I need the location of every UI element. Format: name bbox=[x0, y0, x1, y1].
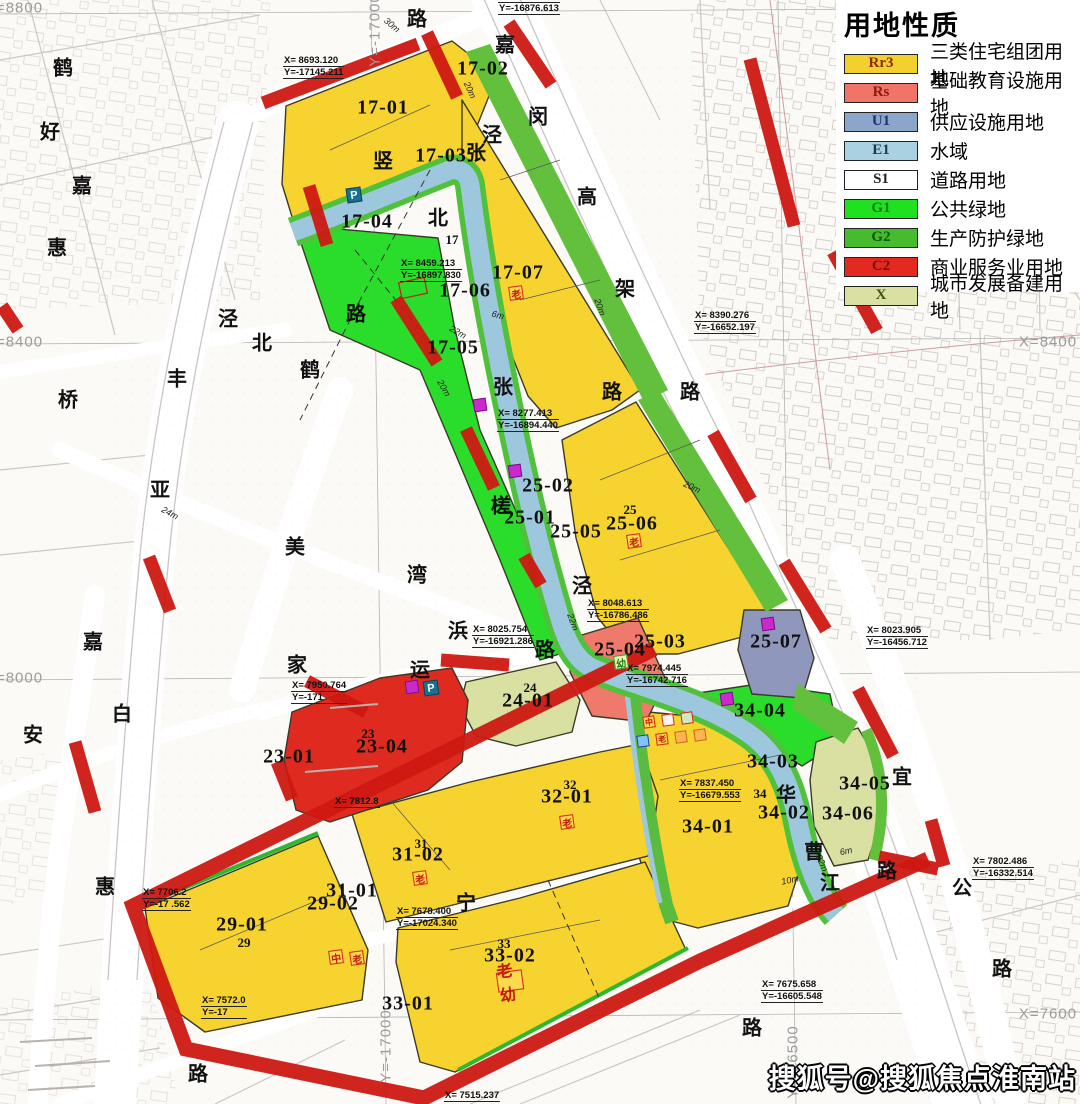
legend-item-Rs: Rs基础教育设施用地 bbox=[844, 78, 1080, 107]
planning-map-page: 17-0117-0217-0317-0417-0517-0617-0725-01… bbox=[0, 0, 1080, 1104]
legend-label-U1: 供应设施用地 bbox=[930, 108, 1044, 135]
legend-swatch-X: X bbox=[844, 286, 918, 306]
legend-item-S1: S1道路用地 bbox=[844, 165, 1080, 194]
legend-swatch-Rr3: Rr3 bbox=[844, 54, 918, 74]
legend-item-G1: G1公共绿地 bbox=[844, 194, 1080, 223]
land-use-legend: 用地性质 Rr3三类住宅组团用地Rs基础教育设施用地U1供应设施用地E1水域S1… bbox=[836, 0, 1080, 292]
legend-swatch-Rs: Rs bbox=[844, 83, 918, 103]
legend-item-X: X城市发展备建用地 bbox=[844, 281, 1080, 310]
legend-item-G2: G2生产防护绿地 bbox=[844, 223, 1080, 252]
legend-swatch-C2: C2 bbox=[844, 257, 918, 277]
legend-swatch-G1: G1 bbox=[844, 199, 918, 219]
legend-item-E1: E1水域 bbox=[844, 136, 1080, 165]
legend-swatch-S1: S1 bbox=[844, 170, 918, 190]
legend-swatch-E1: E1 bbox=[844, 141, 918, 161]
legend-label-S1: 道路用地 bbox=[930, 166, 1006, 193]
legend-label-G1: 公共绿地 bbox=[930, 195, 1006, 222]
legend-swatch-U1: U1 bbox=[844, 112, 918, 132]
legend-rows: Rr3三类住宅组团用地Rs基础教育设施用地U1供应设施用地E1水域S1道路用地G… bbox=[844, 49, 1080, 310]
legend-label-G2: 生产防护绿地 bbox=[930, 224, 1044, 251]
legend-label-E1: 水域 bbox=[930, 137, 968, 164]
watermark: 搜狐号@搜狐焦点淮南站 bbox=[769, 1057, 1076, 1096]
legend-swatch-G2: G2 bbox=[844, 228, 918, 248]
legend-label-X: 城市发展备建用地 bbox=[930, 269, 1080, 323]
